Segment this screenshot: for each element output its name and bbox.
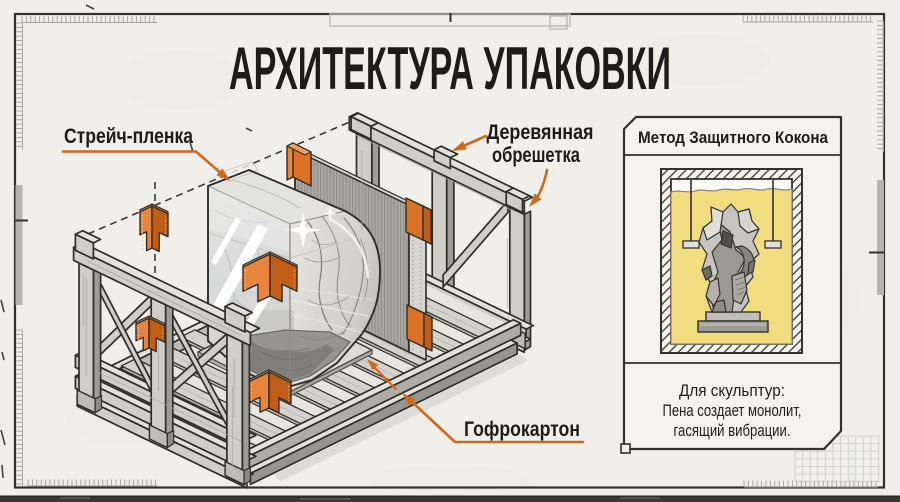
svg-text:Деревянная: Деревянная: [487, 121, 594, 144]
svg-text:Гофрокартон: Гофрокартон: [464, 418, 580, 441]
svg-text:Для скульптур:: Для скульптур:: [679, 382, 785, 400]
svg-text:гасящий вибрации.: гасящий вибрации.: [674, 422, 791, 440]
svg-text:обрешетка: обрешетка: [492, 144, 580, 167]
svg-text:Метод Защитного Кокона: Метод Защитного Кокона: [638, 129, 829, 147]
svg-text:Пена создает монолит,: Пена создает монолит,: [663, 402, 802, 420]
svg-text:АРХИТЕКТУРА УПАКОВКИ: АРХИТЕКТУРА УПАКОВКИ: [229, 35, 671, 102]
svg-text:Стрейч-пленка: Стрейч-пленка: [64, 125, 193, 148]
